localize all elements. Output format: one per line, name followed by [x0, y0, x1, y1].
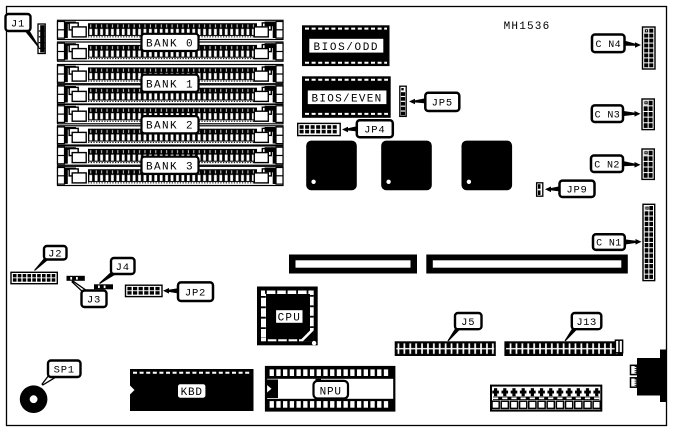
svg-text:BANK 1: BANK 1: [146, 79, 194, 91]
svg-text:SP1: SP1: [54, 365, 75, 377]
svg-text:J4: J4: [116, 262, 130, 274]
svg-text:KBD: KBD: [181, 387, 203, 399]
svg-text:J2: J2: [48, 249, 62, 261]
svg-text:J13: J13: [576, 317, 596, 329]
svg-text:JP5: JP5: [432, 98, 453, 110]
svg-text:BIOS/EVEN: BIOS/EVEN: [311, 93, 382, 105]
svg-text:C N4: C N4: [595, 40, 621, 51]
svg-text:C N1: C N1: [596, 239, 622, 250]
svg-text:BANK 2: BANK 2: [146, 121, 194, 133]
svg-text:C N2: C N2: [594, 160, 620, 171]
svg-text:JP2: JP2: [185, 287, 206, 299]
svg-text:J3: J3: [87, 295, 101, 307]
svg-text:JP4: JP4: [364, 124, 385, 136]
svg-text:JP9: JP9: [566, 185, 587, 197]
svg-text:J1: J1: [11, 18, 25, 30]
svg-text:NPU: NPU: [320, 387, 342, 399]
svg-text:CPU: CPU: [278, 313, 301, 325]
svg-text:BANK 0: BANK 0: [146, 38, 194, 50]
svg-text:BANK 3: BANK 3: [146, 161, 194, 173]
svg-text:BIOS/ODD: BIOS/ODD: [313, 42, 379, 54]
svg-text:C N3: C N3: [595, 110, 621, 121]
svg-text:MH1536: MH1536: [504, 21, 551, 33]
svg-text:J5: J5: [461, 317, 475, 329]
